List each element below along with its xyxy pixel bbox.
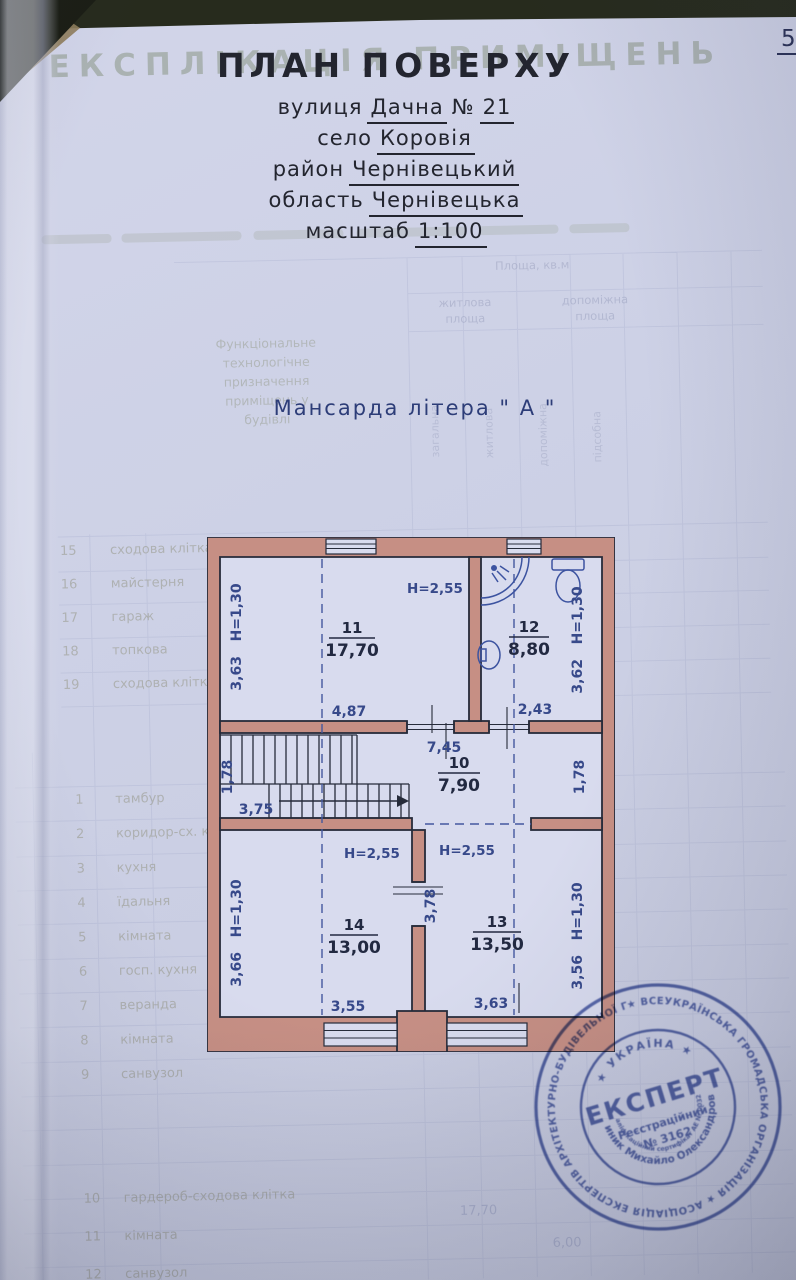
ghost-text: 11 <box>84 1229 101 1244</box>
ghost-text: площа <box>445 311 485 326</box>
page-number: 5 <box>777 26 796 55</box>
street-number: 21 <box>480 93 515 124</box>
page-title: ПЛАН ПОВЕРХУ <box>150 46 642 85</box>
district-label: район <box>273 157 344 181</box>
street-label: вулиця <box>278 95 363 119</box>
room10-number: 10 <box>449 754 470 772</box>
stairs-width-dimension: 3,75 <box>239 802 274 818</box>
corridor-left-dimension: 1,78 <box>220 760 236 795</box>
room12-width-dimension: 2,43 <box>518 702 553 718</box>
ghost-text: 16 <box>61 577 78 592</box>
ghost-text: підсобна <box>590 411 604 463</box>
room13-area: 13,50 <box>470 935 524 955</box>
ghost-text: житлова <box>438 295 491 310</box>
room13-ceiling-height: H=2,55 <box>439 843 495 859</box>
ghost-text: 19 <box>63 678 80 693</box>
room11-area: 17,70 <box>325 641 379 661</box>
ghost-text: 1 <box>75 793 84 808</box>
title-block: ПЛАН ПОВЕРХУ вулицяДачна№21 селоКоровія … <box>150 46 642 248</box>
ghost-text: 15 <box>60 544 77 559</box>
expert-stamp: ★ ВСЕУКРАЇНСЬКА ГРОМАДСЬКА ОРГАНІЗАЦІЯ ★… <box>523 972 793 1242</box>
address-line-scale: масштаб1:100 <box>150 217 642 248</box>
room14-area: 13,00 <box>327 938 381 958</box>
room13-number: 13 <box>487 913 508 931</box>
room11-side-dimension: 3,63 H=1,30 <box>229 583 245 690</box>
address-line-district: районЧернівецький <box>150 155 642 186</box>
ghost-text: 4 <box>77 896 86 911</box>
ghost-text: 5 <box>78 930 87 945</box>
photographed-floor-plan-page: ЕКСПЛІКАЦІЯ ПРИМІЩЕНЬ Площа, кв.мжитлова… <box>0 0 796 1280</box>
ghost-text: кімната <box>118 928 172 944</box>
room12-number: 12 <box>519 618 540 636</box>
ghost-text: їдальня <box>116 894 170 910</box>
ghost-text: санвузол <box>121 1066 183 1082</box>
ghost-text: 8 <box>80 1033 89 1048</box>
room11-width-dimension: 4,87 <box>332 704 367 720</box>
ghost-text: 2 <box>76 827 85 842</box>
ghost-text: 18 <box>62 644 79 659</box>
room14-number: 14 <box>344 916 365 934</box>
ghost-text: топкова <box>112 642 168 658</box>
ghost-text: санвузол <box>125 1266 187 1280</box>
room13-width-dimension: 3,63 <box>474 996 509 1012</box>
ghost-text: 17 <box>61 611 78 626</box>
ghost-text: гараж <box>111 609 154 625</box>
address-line-region: областьЧернівецька <box>150 186 642 217</box>
room14-side-dimension: 3,66 H=1,30 <box>229 879 245 986</box>
ghost-text: 6 <box>79 965 88 980</box>
room14-ceiling-height: H=2,55 <box>344 846 400 862</box>
room14-width-dimension: 3,55 <box>331 999 366 1015</box>
ghost-text: 3 <box>77 861 86 876</box>
ghost-text: кімната <box>120 1032 174 1048</box>
corridor-right-dimension: 1,78 <box>572 760 588 795</box>
room11-number: 11 <box>342 619 363 637</box>
street-value: Дачна <box>367 93 446 124</box>
room10-area: 7,90 <box>438 776 480 796</box>
scale-value: 1:100 <box>415 217 487 248</box>
ghost-text: допоміжна <box>562 292 629 307</box>
room12-side-dimension: 3,62 H=1,30 <box>570 586 586 693</box>
ghost-text: площа <box>575 308 615 323</box>
partition-dimension: 3,78 <box>423 889 439 924</box>
ghost-text: кімната <box>124 1228 178 1244</box>
ghost-text: госп. кухня <box>119 962 198 979</box>
ghost-text: 9 <box>81 1068 90 1083</box>
ghost-text: кухня <box>117 860 157 876</box>
ghost-text: Площа, кв.м <box>495 257 570 273</box>
address-line-street: вулицяДачна№21 <box>150 93 642 124</box>
room12-area: 8,80 <box>508 640 550 660</box>
ghost-column-headers: Площа, кв.мжитловаплощадопоміжнаплощазаг… <box>214 256 632 473</box>
street-number-sign: № <box>452 95 475 119</box>
plan-subtitle: Мансарда літера " А " <box>255 396 575 420</box>
region-value: Чернівецька <box>369 186 524 217</box>
ghost-text: сходова клітка <box>113 675 216 692</box>
room11-ceiling-height: H=2,55 <box>407 581 463 597</box>
village-label: село <box>317 126 372 150</box>
ghost-text: 10 <box>83 1191 100 1206</box>
village-value: Коровія <box>377 124 475 155</box>
district-value: Чернівецький <box>349 155 519 186</box>
ghost-text: Функціональне <box>215 335 316 352</box>
ghost-text: 12 <box>85 1267 102 1280</box>
ghost-text: сходова клітка <box>110 541 213 558</box>
scale-label: масштаб <box>305 219 410 243</box>
ghost-text: веранда <box>119 997 177 1013</box>
ghost-text: технологічне <box>222 354 310 371</box>
ghost-text: 7 <box>79 999 88 1014</box>
shower-head-icon <box>491 565 497 571</box>
ghost-text: гардероб-сходова клітка <box>123 1187 295 1206</box>
ghost-text: 17,70 <box>460 1203 498 1219</box>
ghost-text: призначення <box>224 373 310 390</box>
address-line-village: селоКоровія <box>150 124 642 155</box>
region-label: область <box>269 188 364 212</box>
ghost-text: тамбур <box>115 791 165 807</box>
ghost-text: майстерня <box>111 575 185 592</box>
